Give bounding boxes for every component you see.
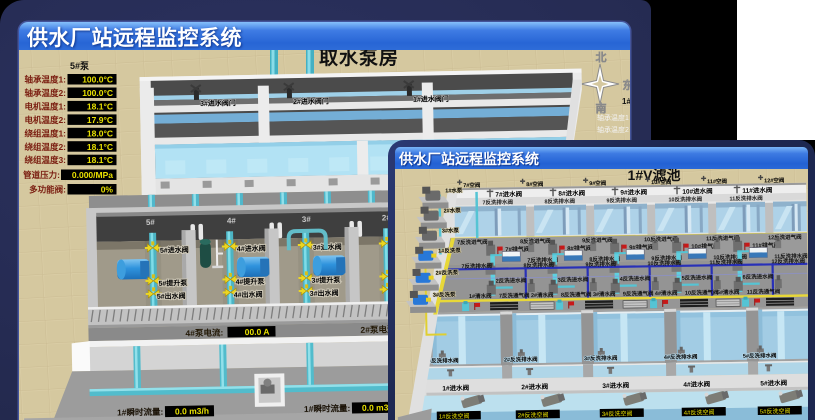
svg-text:0%: 0%: [101, 185, 114, 195]
svg-text:0.0 m3/h: 0.0 m3/h: [175, 406, 209, 417]
svg-text:绕组温度3:: 绕组温度3:: [24, 155, 66, 165]
svg-text:100.0°C: 100.0°C: [82, 75, 113, 85]
svg-text:18.1°C: 18.1°C: [87, 101, 113, 111]
svg-text:3#: 3#: [302, 215, 312, 224]
svg-text:100.0°C: 100.0°C: [82, 88, 113, 98]
svg-text:取水泵房: 取水泵房: [319, 50, 399, 69]
svg-text:2#进水阀: 2#进水阀: [521, 382, 548, 391]
svg-text:1#进水阀: 1#进水阀: [442, 383, 469, 392]
svg-text:4#进水阀: 4#进水阀: [683, 379, 710, 388]
svg-text:绕组温度2:: 绕组温度2:: [24, 142, 66, 152]
svg-text:4#泵电流:: 4#泵电流:: [185, 328, 223, 339]
svg-text:北: 北: [596, 50, 607, 64]
svg-text:5#进水阀: 5#进水阀: [760, 378, 787, 387]
svg-text:5#: 5#: [146, 218, 156, 227]
svg-text:多功能阀:: 多功能阀:: [29, 185, 66, 195]
svg-text:18.0°C: 18.0°C: [87, 128, 113, 138]
svg-text:1#瞬时流量:: 1#瞬时流量:: [117, 407, 164, 418]
svg-text:00.0 A: 00.0 A: [245, 327, 270, 337]
svg-text:0.000/MPa: 0.000/MPa: [72, 170, 113, 180]
svg-text:电机温度2:: 电机温度2:: [24, 115, 66, 125]
svg-text:17.9°C: 17.9°C: [87, 115, 113, 125]
svg-text:轴承温度2:: 轴承温度2:: [24, 88, 66, 98]
svg-text:轴承温度2: 轴承温度2: [597, 125, 629, 134]
svg-text:1#泵: 1#泵: [622, 97, 630, 106]
svg-text:4#: 4#: [227, 216, 237, 225]
svg-text:8#进水阀: 8#进水阀: [558, 188, 585, 197]
svg-text:7#进水阀: 7#进水阀: [495, 189, 522, 198]
svg-text:南: 南: [596, 101, 607, 115]
svg-text:9#进水阀: 9#进水阀: [620, 187, 647, 196]
svg-text:轴承温度1: 轴承温度1: [597, 113, 629, 122]
svg-text:轴承温度1:: 轴承温度1:: [24, 75, 66, 85]
svg-text:管道压力:: 管道压力:: [23, 170, 60, 180]
svg-text:电机温度1:: 电机温度1:: [24, 101, 66, 111]
svg-text:18.1°C: 18.1°C: [87, 155, 113, 165]
svg-text:绕组温度1:: 绕组温度1:: [24, 128, 66, 138]
svg-text:5#泵: 5#泵: [70, 61, 90, 71]
svg-text:3#进水阀: 3#进水阀: [602, 381, 629, 390]
svg-text:1#瞬时流量:: 1#瞬时流量:: [304, 403, 351, 414]
svg-text:东: 东: [623, 78, 631, 92]
svg-text:18.1°C: 18.1°C: [87, 142, 113, 152]
